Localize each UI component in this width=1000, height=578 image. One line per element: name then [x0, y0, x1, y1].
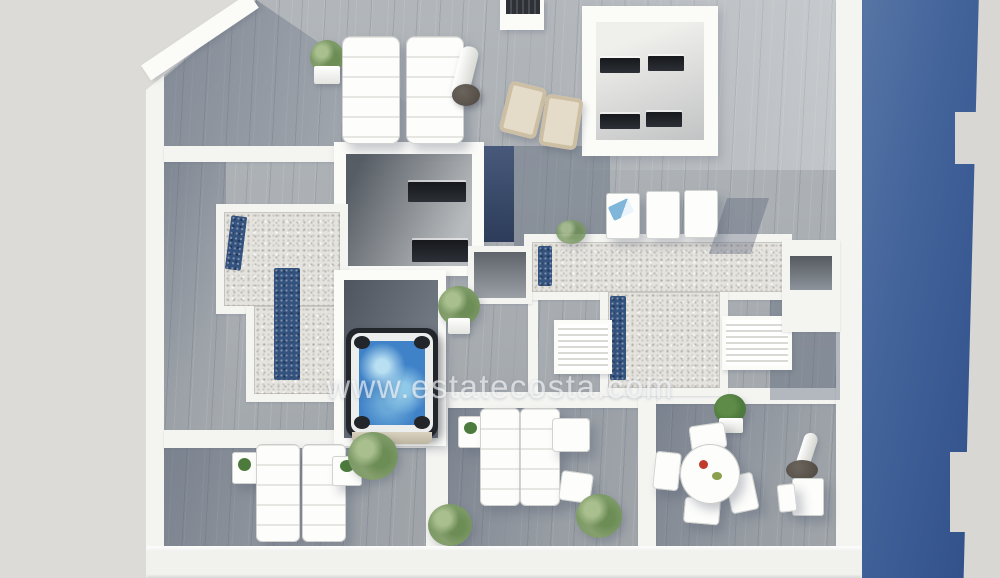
neighbor-wall-notch — [950, 452, 1000, 532]
small-sun-lounger — [646, 191, 680, 239]
watermark-text: www.estatecosta.com — [0, 368, 1000, 406]
plant-pot — [448, 318, 470, 334]
table-plant — [464, 422, 477, 434]
hot-tub-seat — [414, 336, 430, 349]
louvered-pergola — [554, 320, 612, 374]
pitched-roof-band — [484, 146, 514, 242]
lightwell-window — [600, 58, 640, 73]
lightwell-window — [412, 240, 468, 262]
hot-tub-seat — [414, 416, 430, 429]
potted-plant — [348, 432, 398, 480]
small-sun-lounger — [684, 190, 718, 238]
dining-chair — [652, 451, 682, 492]
hot-tub-seat — [354, 416, 370, 429]
sun-lounger — [256, 444, 300, 542]
rooftop-render-scene: www.estatecosta.com — [0, 0, 1000, 578]
side-table — [792, 478, 824, 516]
table-plant — [238, 458, 251, 471]
potted-plant — [556, 220, 586, 244]
building-front-face — [146, 546, 862, 578]
plant-pot — [314, 66, 340, 84]
parasol-base — [452, 84, 480, 106]
hot-tub-seat — [354, 336, 370, 349]
patio-chair — [552, 418, 590, 452]
sun-lounger — [342, 36, 400, 144]
lightwell-window — [408, 182, 466, 202]
potted-plant — [428, 504, 472, 546]
table-item-green — [712, 472, 722, 480]
skylight-strip — [538, 246, 552, 286]
parasol-base — [786, 460, 818, 480]
neighbor-wall-notch — [955, 112, 1000, 164]
skylight-strip — [274, 268, 300, 380]
parapet-wall — [164, 146, 340, 162]
lightwell-window — [600, 114, 640, 129]
stair-opening-right — [790, 256, 832, 290]
round-dining-table — [680, 444, 740, 504]
lightwell-window — [648, 56, 684, 71]
wicker-lounge-chair — [538, 93, 584, 150]
table-item-red — [699, 460, 708, 469]
stair-access-opening — [474, 252, 526, 298]
sun-lounger — [480, 408, 520, 506]
chimney-vent-grille — [506, 0, 540, 14]
potted-plant — [576, 494, 622, 538]
patio-chair — [777, 483, 798, 513]
lightwell-window — [646, 112, 682, 127]
